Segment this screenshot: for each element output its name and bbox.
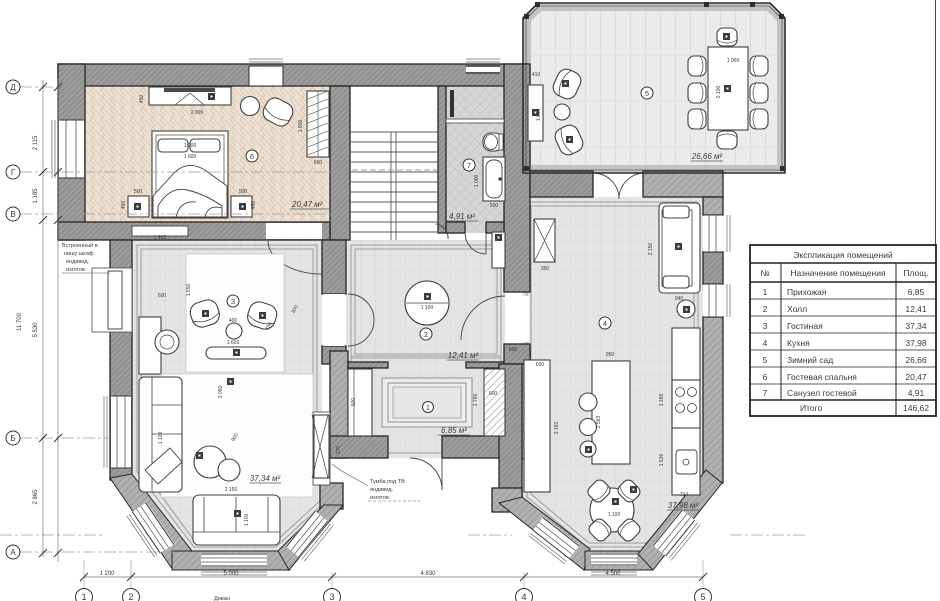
svg-text:2 150: 2 150 — [225, 487, 238, 493]
svg-text:1 000: 1 000 — [474, 175, 480, 188]
svg-text:№: № — [760, 268, 769, 278]
svg-text:7: 7 — [763, 388, 768, 398]
svg-text:Кухня: Кухня — [787, 338, 810, 348]
svg-text:20,47: 20,47 — [905, 372, 927, 382]
svg-text:1 289: 1 289 — [659, 394, 665, 407]
svg-text:2 115: 2 115 — [33, 135, 39, 150]
svg-text:270: 270 — [336, 446, 342, 455]
svg-text:450: 450 — [121, 201, 127, 210]
svg-text:индивид.: индивид. — [370, 487, 394, 493]
svg-text:1 100: 1 100 — [608, 512, 621, 518]
svg-text:4 830: 4 830 — [420, 571, 436, 577]
svg-text:400: 400 — [229, 318, 238, 324]
svg-text:6: 6 — [763, 372, 768, 382]
svg-text:Гостиная: Гостиная — [787, 321, 823, 331]
svg-text:Холл: Холл — [787, 304, 807, 314]
svg-text:3 182: 3 182 — [554, 422, 560, 435]
svg-text:4 500: 4 500 — [605, 571, 621, 577]
svg-text:1 800: 1 800 — [298, 120, 304, 133]
svg-text:600: 600 — [158, 293, 167, 299]
svg-text:5 530: 5 530 — [33, 322, 39, 338]
svg-text:6: 6 — [250, 152, 254, 161]
svg-text:800: 800 — [509, 347, 518, 353]
svg-text:500: 500 — [351, 398, 357, 407]
svg-text:Санузел гостевой: Санузел гостевой — [787, 388, 857, 398]
svg-text:3 050: 3 050 — [218, 386, 224, 399]
svg-text:Диван: Диван — [214, 596, 230, 601]
svg-text:600: 600 — [489, 391, 498, 397]
svg-text:2: 2 — [424, 330, 428, 339]
svg-text:1 185: 1 185 — [33, 188, 39, 204]
svg-text:2: 2 — [128, 592, 133, 601]
svg-text:600: 600 — [536, 362, 545, 368]
svg-text:нишу шкаф: нишу шкаф — [64, 251, 94, 257]
svg-text:1 200: 1 200 — [99, 571, 115, 577]
svg-text:Площ.: Площ. — [903, 268, 928, 278]
svg-text:5 000: 5 000 — [223, 571, 239, 577]
svg-text:1 100: 1 100 — [158, 432, 164, 445]
svg-text:3: 3 — [763, 321, 768, 331]
svg-text:3: 3 — [329, 592, 334, 601]
svg-text:11 700: 11 700 — [17, 312, 23, 331]
svg-text:1 760: 1 760 — [473, 394, 479, 407]
svg-text:20,47 м²: 20,47 м² — [291, 200, 323, 209]
svg-text:5: 5 — [645, 89, 649, 98]
svg-text:1 200: 1 200 — [536, 109, 542, 122]
svg-text:1 536: 1 536 — [659, 454, 665, 467]
svg-text:410: 410 — [532, 72, 541, 78]
svg-text:5: 5 — [763, 355, 768, 365]
svg-text:600: 600 — [314, 160, 323, 166]
svg-text:26,66 м²: 26,66 м² — [691, 152, 723, 161]
svg-text:2 150: 2 150 — [648, 243, 654, 256]
svg-text:Б: Б — [10, 434, 15, 443]
svg-text:6,85: 6,85 — [908, 287, 925, 297]
svg-text:500: 500 — [490, 203, 499, 209]
svg-text:А: А — [10, 548, 16, 557]
svg-text:714: 714 — [680, 492, 689, 498]
svg-text:37,98: 37,98 — [905, 338, 927, 348]
svg-text:1 600: 1 600 — [184, 154, 197, 160]
svg-text:индивид.: индивид. — [66, 259, 90, 265]
svg-text:2 100: 2 100 — [716, 86, 722, 99]
svg-text:4,91 м²: 4,91 м² — [449, 212, 475, 221]
svg-text:1 000: 1 000 — [727, 58, 740, 64]
svg-text:450: 450 — [139, 95, 145, 104]
svg-text:1 900: 1 900 — [184, 143, 197, 149]
svg-text:26,66: 26,66 — [905, 355, 927, 365]
svg-text:37,98 м²: 37,98 м² — [668, 501, 699, 510]
svg-text:1 600: 1 600 — [227, 340, 240, 346]
svg-text:4: 4 — [603, 319, 607, 328]
svg-text:350: 350 — [541, 266, 550, 272]
svg-text:2 563: 2 563 — [596, 416, 602, 429]
svg-text:2 865: 2 865 — [33, 489, 39, 505]
svg-text:Прихожая: Прихожая — [787, 287, 827, 297]
svg-text:12,41 м²: 12,41 м² — [448, 351, 479, 360]
svg-text:1 100: 1 100 — [244, 514, 250, 527]
svg-text:37,34 м²: 37,34 м² — [250, 474, 281, 483]
svg-text:7: 7 — [467, 161, 471, 170]
svg-text:4,91: 4,91 — [908, 388, 925, 398]
svg-text:1 402: 1 402 — [154, 235, 167, 241]
svg-text:2: 2 — [763, 304, 768, 314]
svg-text:1 550: 1 550 — [186, 284, 192, 297]
svg-text:Итого: Итого — [800, 403, 823, 413]
svg-text:изготов.: изготов. — [370, 495, 391, 501]
svg-text:1: 1 — [81, 592, 86, 601]
svg-text:1: 1 — [763, 287, 768, 297]
svg-text:3: 3 — [231, 297, 235, 306]
svg-text:1: 1 — [426, 403, 430, 412]
svg-text:2 000: 2 000 — [191, 110, 204, 116]
svg-text:Встроенный в: Встроенный в — [62, 242, 98, 249]
svg-text:500: 500 — [239, 189, 248, 195]
svg-text:950: 950 — [606, 352, 615, 358]
svg-text:Экспликация помещений: Экспликация помещений — [793, 250, 893, 260]
svg-text:Д: Д — [10, 83, 16, 92]
svg-text:146,62: 146,62 — [903, 403, 929, 413]
svg-text:500: 500 — [134, 189, 143, 195]
svg-text:В: В — [10, 210, 15, 219]
svg-text:1 100: 1 100 — [421, 305, 434, 311]
svg-text:Тумба под ТВ: Тумба под ТВ — [370, 479, 405, 485]
svg-text:5: 5 — [700, 592, 705, 601]
svg-text:Г: Г — [11, 168, 16, 177]
svg-text:Зимний сад: Зимний сад — [787, 355, 833, 365]
svg-text:4: 4 — [763, 338, 768, 348]
svg-text:12,41: 12,41 — [905, 304, 927, 314]
svg-text:изготов.: изготов. — [66, 267, 87, 273]
svg-text:37,34: 37,34 — [905, 321, 927, 331]
svg-text:Гостевая спальня: Гостевая спальня — [787, 372, 857, 382]
svg-text:Назначение помещения: Назначение помещения — [790, 268, 886, 278]
svg-text:450: 450 — [251, 201, 257, 210]
svg-text:6,85 м²: 6,85 м² — [441, 426, 467, 435]
svg-text:940: 940 — [675, 296, 684, 302]
svg-text:4: 4 — [521, 592, 526, 601]
